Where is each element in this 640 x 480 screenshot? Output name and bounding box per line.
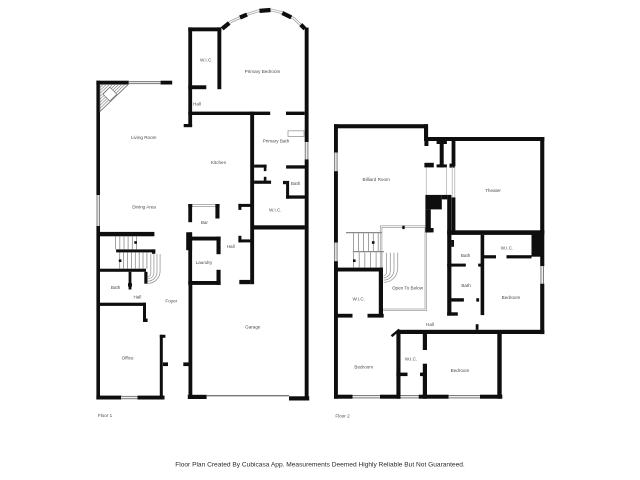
svg-text:Billiard Room: Billiard Room bbox=[363, 177, 390, 182]
svg-text:Bar: Bar bbox=[201, 220, 209, 225]
svg-text:Hall: Hall bbox=[426, 322, 434, 327]
svg-text:Hall: Hall bbox=[193, 102, 201, 107]
svg-text:Floor Plan Created By Cubicasa: Floor Plan Created By Cubicasa App. Meas… bbox=[175, 461, 465, 468]
svg-text:Bedroom: Bedroom bbox=[502, 295, 521, 300]
svg-text:Hall: Hall bbox=[133, 294, 141, 299]
svg-text:Primary Bedroom: Primary Bedroom bbox=[245, 69, 281, 74]
svg-text:W.I.C.: W.I.C. bbox=[501, 245, 514, 250]
svg-text:W.I.C.: W.I.C. bbox=[405, 357, 418, 362]
svg-text:Primary Bath: Primary Bath bbox=[263, 139, 290, 144]
svg-text:Garage: Garage bbox=[245, 325, 261, 330]
svg-text:Bath: Bath bbox=[291, 181, 301, 186]
svg-text:Laundry: Laundry bbox=[196, 260, 213, 265]
svg-text:Bath: Bath bbox=[111, 285, 121, 290]
svg-text:Floor 1: Floor 1 bbox=[98, 413, 113, 418]
svg-text:Bath: Bath bbox=[461, 253, 471, 258]
svg-text:Dining Area: Dining Area bbox=[132, 205, 156, 210]
svg-text:W.I.C.: W.I.C. bbox=[200, 58, 213, 63]
svg-text:Bedroom: Bedroom bbox=[354, 364, 373, 369]
svg-text:Floor 2: Floor 2 bbox=[335, 414, 350, 419]
svg-text:Kitchen: Kitchen bbox=[211, 160, 227, 165]
svg-text:Living Room: Living Room bbox=[131, 135, 157, 140]
svg-text:Office: Office bbox=[122, 355, 134, 360]
svg-text:Open To Below: Open To Below bbox=[392, 286, 424, 291]
svg-text:Bath: Bath bbox=[461, 283, 471, 288]
svg-text:Foyer: Foyer bbox=[165, 299, 177, 304]
svg-text:Bedroom: Bedroom bbox=[451, 368, 470, 373]
svg-text:Theater: Theater bbox=[485, 188, 501, 193]
svg-text:W.I.C.: W.I.C. bbox=[269, 208, 282, 213]
svg-text:W.I.C.: W.I.C. bbox=[352, 296, 365, 301]
svg-text:Hall: Hall bbox=[227, 244, 235, 249]
